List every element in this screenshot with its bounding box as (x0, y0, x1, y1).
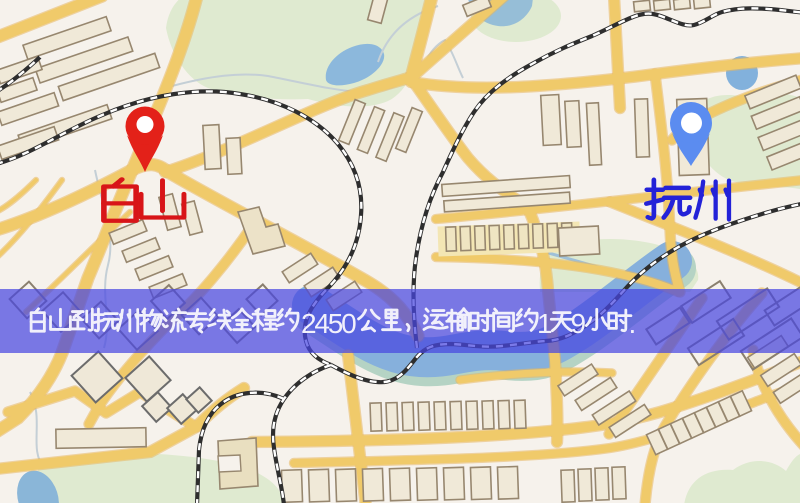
svg-text:1: 1 (537, 308, 553, 339)
svg-text:9: 9 (571, 308, 587, 339)
svg-text:2450: 2450 (301, 308, 356, 339)
svg-text:.: . (629, 308, 637, 339)
